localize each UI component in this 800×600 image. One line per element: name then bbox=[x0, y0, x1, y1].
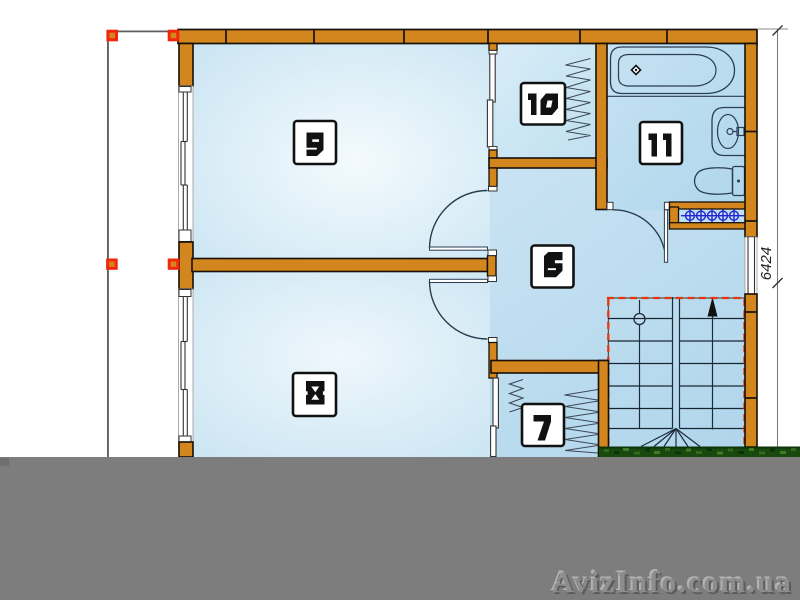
svg-text:6424: 6424 bbox=[758, 247, 775, 280]
svg-text:AvizInfo.com.ua: AvizInfo.com.ua bbox=[552, 566, 793, 599]
